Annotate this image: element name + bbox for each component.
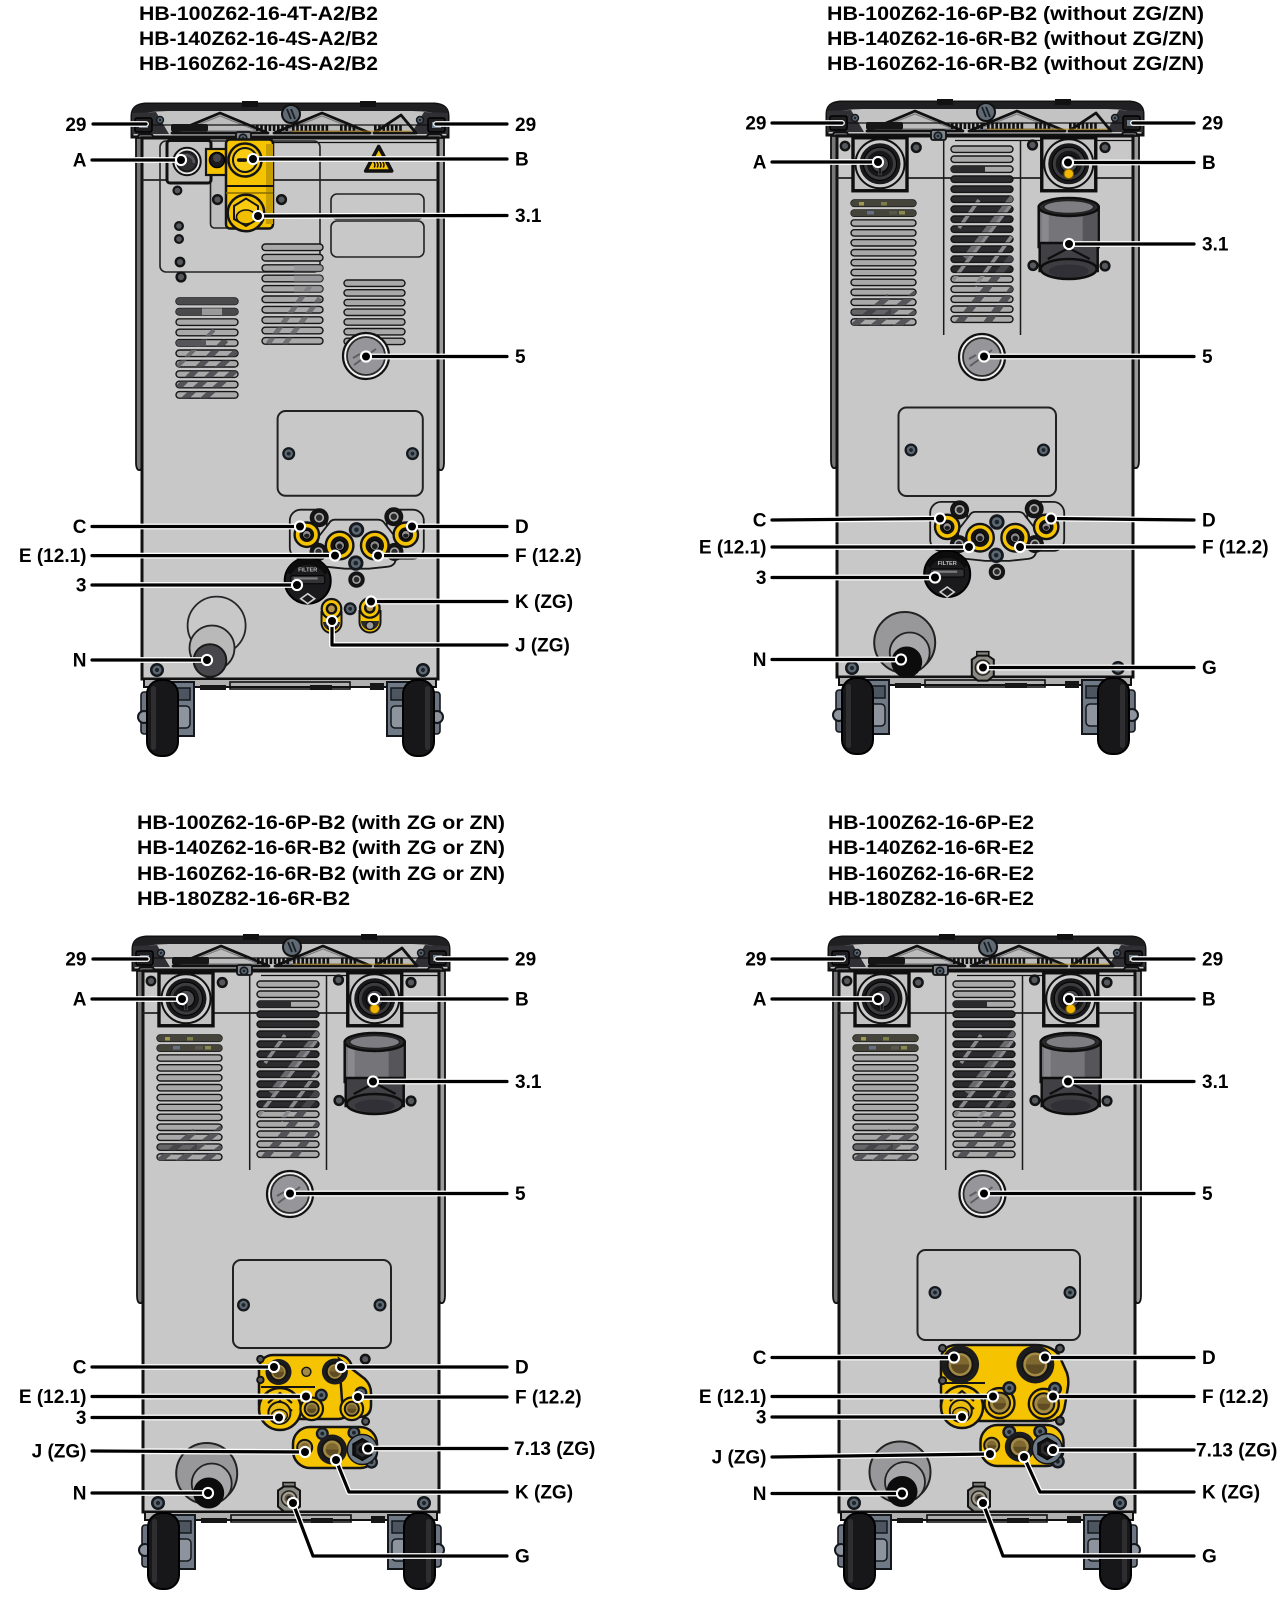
svg-text:A: A: [753, 153, 767, 174]
svg-text:3.1: 3.1: [515, 1072, 542, 1093]
svg-text:C: C: [73, 1358, 87, 1379]
svg-text:HB-180Z82-16-6R-E2: HB-180Z82-16-6R-E2: [828, 888, 1034, 910]
svg-text:HB-140Z62-16-6R-E2: HB-140Z62-16-6R-E2: [828, 837, 1034, 859]
svg-text:E (12.1): E (12.1): [699, 538, 767, 559]
svg-text:D: D: [1202, 1348, 1216, 1369]
svg-text:N: N: [753, 1484, 767, 1505]
svg-text:G: G: [515, 1547, 530, 1568]
svg-text:29: 29: [65, 115, 86, 136]
svg-text:E (12.1): E (12.1): [19, 1387, 87, 1408]
svg-text:A: A: [73, 151, 87, 172]
svg-text:29: 29: [1202, 950, 1223, 971]
svg-text:3.1: 3.1: [1202, 1072, 1229, 1093]
svg-text:E (12.1): E (12.1): [19, 546, 87, 567]
svg-text:29: 29: [515, 115, 536, 136]
svg-text:HB-160Z62-16-6R-B2 (without ZG: HB-160Z62-16-6R-B2 (without ZG/ZN): [827, 53, 1204, 75]
svg-text:C: C: [753, 511, 767, 532]
svg-text:29: 29: [515, 950, 536, 971]
svg-text:F (12.2): F (12.2): [1202, 1387, 1269, 1408]
svg-text:5: 5: [515, 347, 526, 368]
svg-text:HB-160Z62-16-6R-B2 (with ZG or: HB-160Z62-16-6R-B2 (with ZG or ZN): [137, 863, 505, 885]
svg-text:B: B: [515, 990, 529, 1011]
svg-text:E (12.1): E (12.1): [699, 1387, 767, 1408]
svg-text:J (ZG): J (ZG): [32, 1442, 87, 1463]
svg-text:5: 5: [515, 1184, 526, 1205]
svg-text:C: C: [753, 1348, 767, 1369]
svg-text:FILTER: FILTER: [938, 561, 957, 567]
svg-text:3: 3: [756, 1408, 767, 1429]
svg-text:N: N: [73, 651, 87, 672]
svg-text:5: 5: [1202, 347, 1213, 368]
svg-text:29: 29: [65, 950, 86, 971]
svg-text:B: B: [515, 150, 529, 171]
svg-text:D: D: [515, 1358, 529, 1379]
svg-text:B: B: [1202, 990, 1216, 1011]
svg-text:29: 29: [745, 114, 766, 135]
svg-text:B: B: [1202, 153, 1216, 174]
svg-text:K (ZG): K (ZG): [515, 1483, 573, 1504]
svg-text:HB-100Z62-16-6P-E2: HB-100Z62-16-6P-E2: [828, 812, 1034, 834]
svg-text:3: 3: [76, 1408, 87, 1429]
svg-text:7.13 (ZG): 7.13 (ZG): [1196, 1441, 1277, 1462]
svg-text:J (ZG): J (ZG): [515, 636, 570, 657]
svg-text:HB-140Z62-16-6R-B2 (with ZG or: HB-140Z62-16-6R-B2 (with ZG or ZN): [137, 837, 505, 859]
svg-text:HB-100Z62-16-4T-A2/B2: HB-100Z62-16-4T-A2/B2: [139, 3, 378, 25]
svg-text:3.1: 3.1: [1202, 235, 1229, 256]
svg-text:HB-140Z62-16-6R-B2 (without ZG: HB-140Z62-16-6R-B2 (without ZG/ZN): [827, 28, 1204, 50]
svg-text:A: A: [73, 990, 87, 1011]
svg-text:3: 3: [756, 568, 767, 589]
svg-text:F (12.2): F (12.2): [1202, 538, 1269, 559]
svg-text:A: A: [753, 990, 767, 1011]
svg-text:D: D: [515, 517, 529, 538]
svg-text:C: C: [73, 517, 87, 538]
svg-text:N: N: [73, 1484, 87, 1505]
svg-text:HB-140Z62-16-4S-A2/B2: HB-140Z62-16-4S-A2/B2: [139, 28, 378, 50]
svg-text:FILTER: FILTER: [298, 568, 317, 574]
svg-text:HB-100Z62-16-6P-B2 (with ZG or: HB-100Z62-16-6P-B2 (with ZG or ZN): [137, 812, 505, 834]
svg-text:3.1: 3.1: [515, 206, 542, 227]
svg-text:5: 5: [1202, 1184, 1213, 1205]
svg-text:7.13 (ZG): 7.13 (ZG): [514, 1439, 595, 1460]
svg-text:HB-100Z62-16-6P-B2 (without ZG: HB-100Z62-16-6P-B2 (without ZG/ZN): [827, 3, 1204, 25]
svg-text:G: G: [1202, 1547, 1217, 1568]
svg-text:29: 29: [745, 950, 766, 971]
svg-text:HB-160Z62-16-6R-E2: HB-160Z62-16-6R-E2: [828, 863, 1034, 885]
svg-text:F (12.2): F (12.2): [515, 546, 582, 567]
svg-text:G: G: [1202, 658, 1217, 679]
svg-text:F (12.2): F (12.2): [515, 1388, 582, 1409]
svg-text:K (ZG): K (ZG): [515, 592, 573, 613]
svg-text:HB-180Z82-16-6R-B2: HB-180Z82-16-6R-B2: [137, 888, 350, 910]
svg-text:D: D: [1202, 511, 1216, 532]
svg-text:HB-160Z62-16-4S-A2/B2: HB-160Z62-16-4S-A2/B2: [139, 53, 378, 75]
svg-text:J (ZG): J (ZG): [712, 1448, 767, 1469]
svg-text:3: 3: [76, 576, 87, 597]
svg-text:K (ZG): K (ZG): [1202, 1483, 1260, 1504]
svg-text:29: 29: [1202, 114, 1223, 135]
svg-text:N: N: [753, 650, 767, 671]
